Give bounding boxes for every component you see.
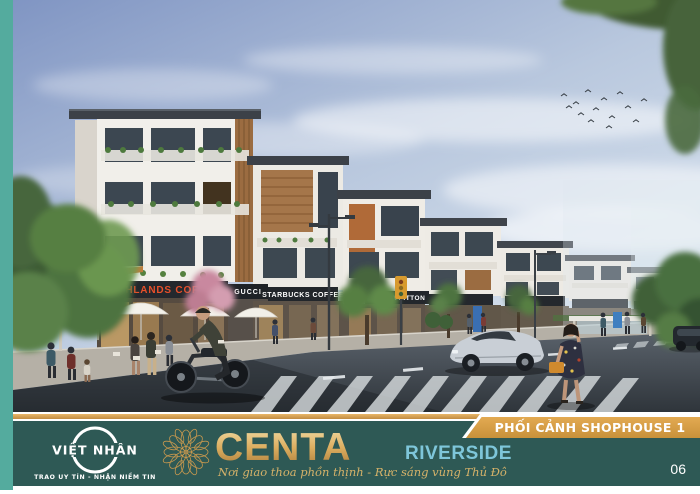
- page-number: 06: [670, 461, 686, 477]
- mandala-ornament-icon: [162, 428, 210, 476]
- brand-suffix: RIVERSIDE: [405, 443, 512, 464]
- shop-sign-starbucks: STARBUCKS COFFEE: [262, 292, 344, 299]
- shophouse-block-b: [247, 156, 349, 290]
- dark-car: [669, 326, 700, 353]
- handbag: [549, 362, 564, 373]
- shelter-ad-panel: [613, 312, 622, 328]
- developer-name: VIỆT NHÂN: [52, 443, 138, 458]
- shop-sign-gucci: GUCCI: [234, 289, 262, 296]
- accent-side-bar: [0, 0, 13, 490]
- developer-logo: VIỆT NHÂN TRAO UY TÍN - NHẬN NIỀM TIN: [30, 423, 160, 485]
- brand-name: CENTA: [215, 426, 351, 469]
- shophouse-perspective-render: HIGHLANDS COFFEE GUCCI STARBUCKS COFFEE …: [13, 0, 700, 412]
- pole-banner: [473, 306, 482, 332]
- brand-slogan: Nơi giao thoa phồn thịnh - Rực sáng vùng…: [217, 465, 507, 479]
- brochure-page: HIGHLANDS COFFEE GUCCI STARBUCKS COFFEE …: [0, 0, 700, 494]
- brand-lockup: CENTA RIVERSIDE Nơi giao thoa phồn thịnh…: [160, 421, 530, 485]
- shophouse-block-d: [420, 218, 507, 296]
